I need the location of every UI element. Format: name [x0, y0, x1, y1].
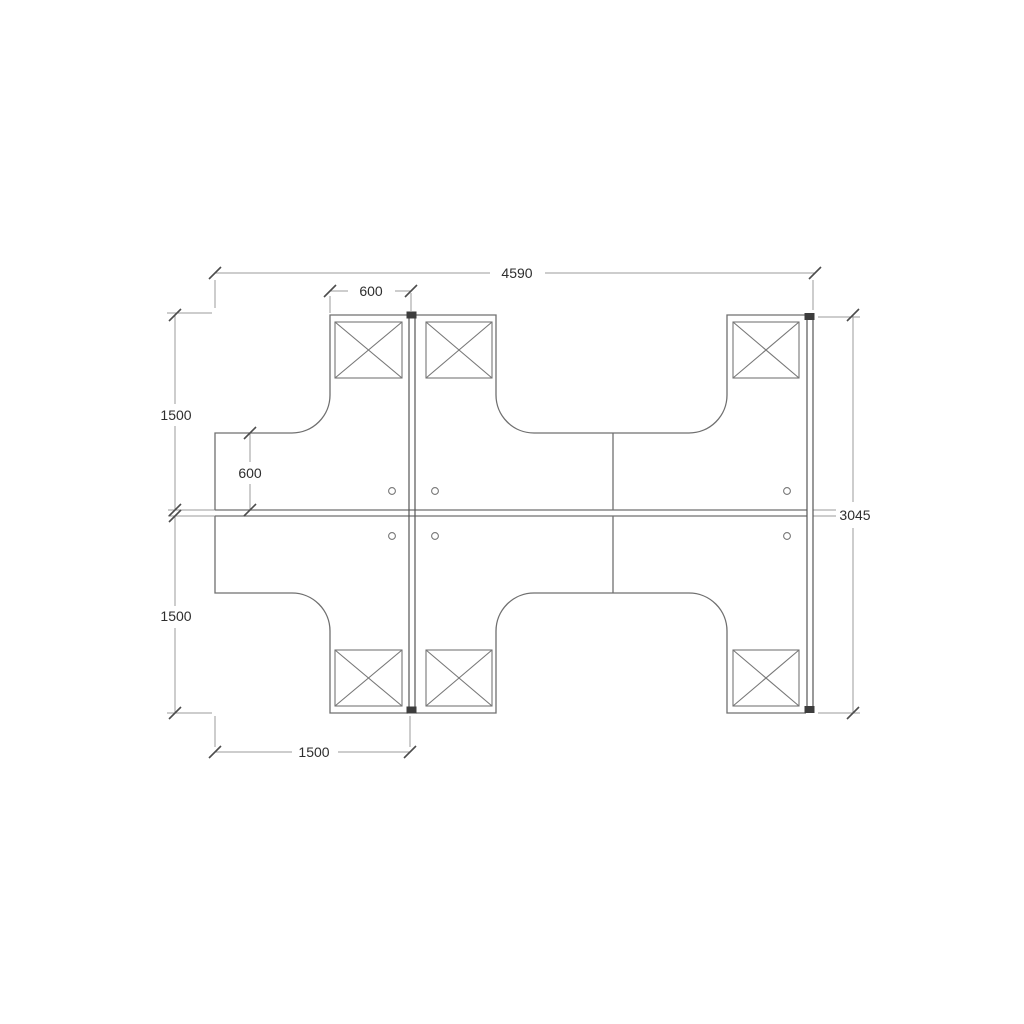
centre-desk-edges [215, 510, 807, 516]
dimension-total-width: 4590 [209, 265, 821, 281]
desk-bottom-middle-and-right [416, 516, 806, 713]
right-end-screen-panel [805, 313, 815, 713]
dim-label-upper-left-depth: 1500 [160, 407, 191, 423]
centre-screen-partition [407, 312, 417, 714]
drawing-page: 4590 600 1500 600 1500 3045 [0, 0, 1024, 1024]
crossed-box-symbols [335, 322, 799, 706]
crossed-box-top-middle-icon [426, 322, 492, 378]
dimension-bottom-return-length: 1500 [209, 744, 416, 760]
dimension-return-depth: 600 [238, 427, 262, 516]
dimension-lower-left-depth: 1500 [160, 510, 191, 719]
dimension-top-segment: 600 [324, 283, 417, 299]
dim-label-top-segment: 600 [359, 283, 383, 299]
crossed-box-bottom-left-icon [335, 650, 402, 706]
crossed-box-top-left-icon [335, 322, 402, 378]
dimension-extension-lines [167, 280, 860, 747]
dimension-upper-left-depth: 1500 [160, 309, 191, 516]
dim-label-bottom-return-length: 1500 [298, 744, 329, 760]
desk-top-middle-and-right [416, 315, 806, 510]
desk-bottom-left [215, 516, 408, 713]
crossed-box-top-right-icon [733, 322, 799, 378]
dimension-overall-depth: 3045 [839, 309, 870, 719]
dim-label-lower-left-depth: 1500 [160, 608, 191, 624]
floor-plan-canvas: 4590 600 1500 600 1500 3045 [0, 0, 1024, 1024]
dim-label-overall-depth: 3045 [839, 507, 870, 523]
crossed-box-bottom-middle-icon [426, 650, 492, 706]
dim-label-total-width: 4590 [501, 265, 532, 281]
crossed-box-bottom-right-icon [733, 650, 799, 706]
dim-label-return-depth: 600 [238, 465, 262, 481]
grommet-holes [389, 488, 791, 540]
